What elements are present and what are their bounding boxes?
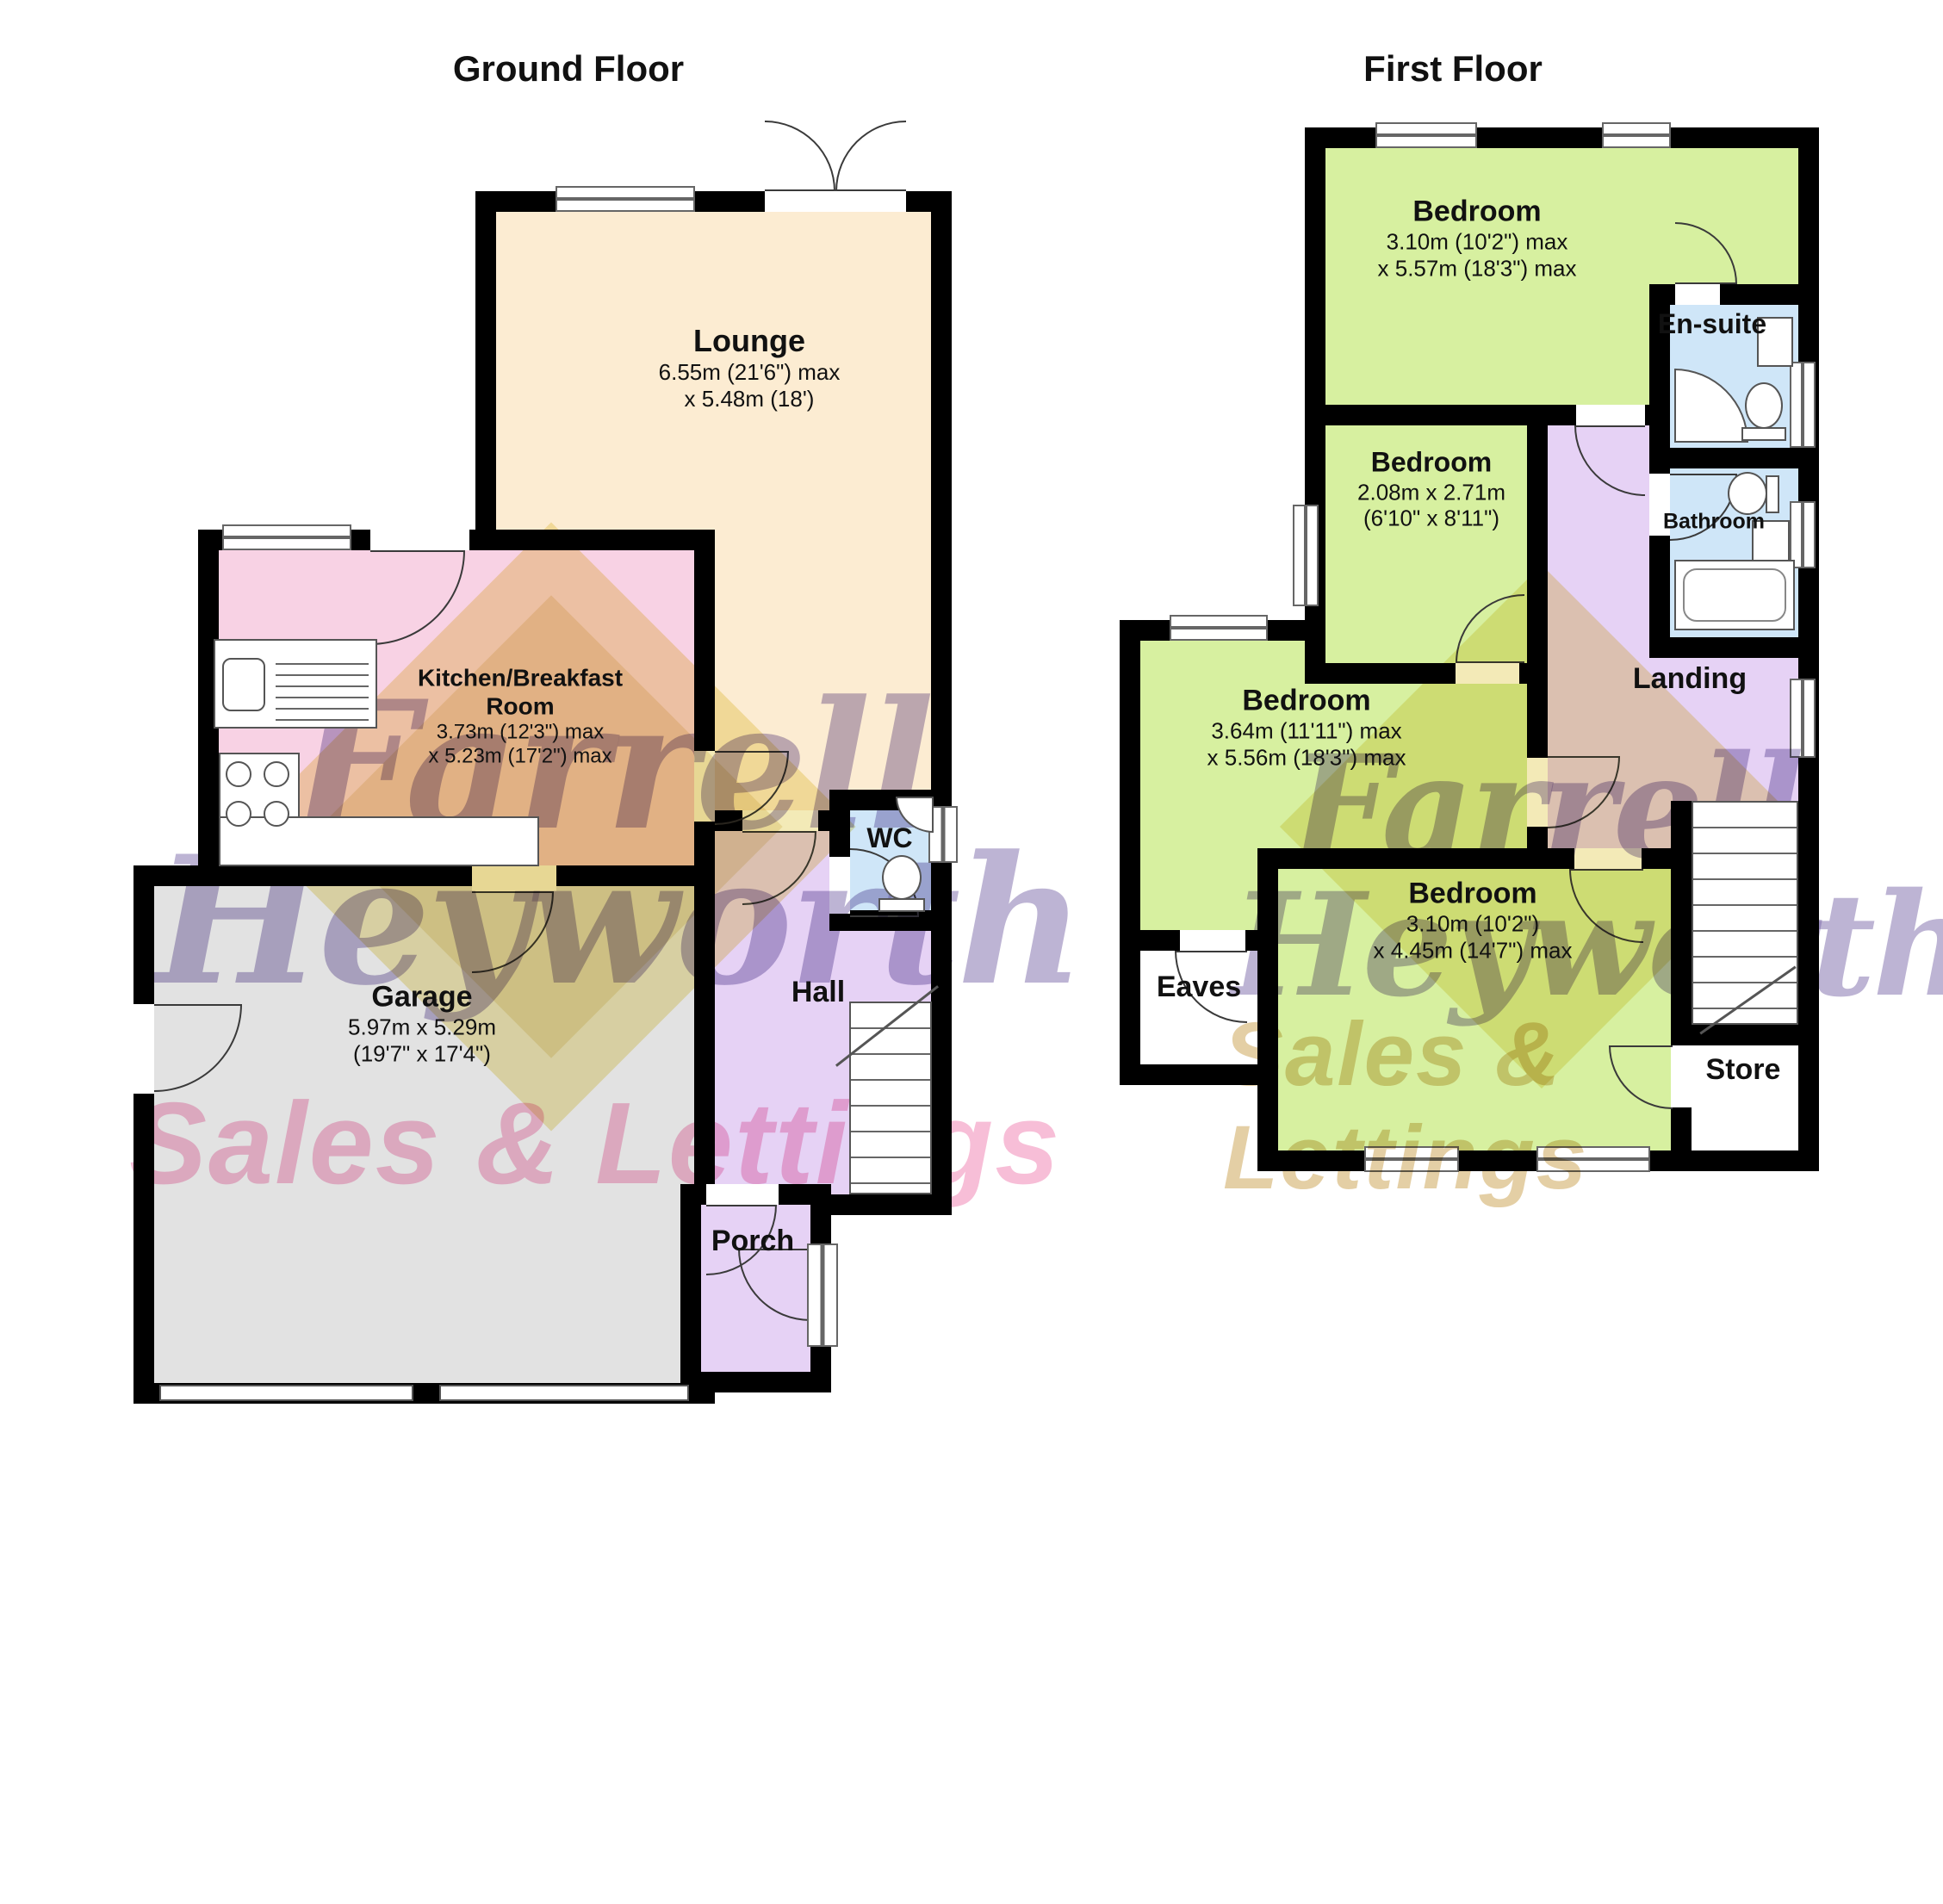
right-outer-wall [1798, 869, 1819, 1025]
kitchen-door-opening [370, 530, 469, 550]
porch-label: Porch [711, 1224, 794, 1258]
wc-door-opening [829, 857, 850, 914]
french-door-opening [765, 191, 906, 212]
bedroom1-door-opening [1576, 405, 1645, 425]
garage-door-fixture [439, 1385, 689, 1401]
bedroom4-window-icon [1364, 1146, 1459, 1172]
kitchen-garage-door-opening [472, 865, 556, 891]
kitchen-sink-fixture [222, 658, 265, 711]
store-name: Store [1706, 1052, 1781, 1087]
lounge-dim: 6.55m (21'6") max [659, 360, 841, 387]
hob-burner-icon [264, 761, 289, 787]
bathroom-toilet-tank-icon [1766, 475, 1779, 513]
hob-burner-icon [226, 801, 251, 827]
kitchen-units-fixture [219, 816, 539, 866]
floorplan-canvas: Ground Floor First Floor [0, 0, 1943, 1904]
bedroom3-dim: 3.64m (11'11") max [1207, 717, 1406, 744]
garage-name: Garage [348, 979, 496, 1014]
bedroom3-window-icon [1170, 615, 1268, 641]
bedroom1-dim: 3.10m (10'2") max [1378, 228, 1577, 255]
kitchen-dim: 3.73m (12'3") max [387, 721, 654, 745]
ensuite-bathroom-wall [1649, 448, 1819, 468]
hob-burner-icon [226, 761, 251, 787]
wc-toilet-fixture [882, 855, 922, 900]
landing-name: Landing [1633, 661, 1747, 696]
bath-inner-icon [1683, 568, 1786, 622]
wc-name: WC [866, 822, 912, 855]
ensuite-door-opening [1675, 284, 1720, 305]
first-floor-title: First Floor [1363, 48, 1543, 90]
garage-side-door-opening [133, 1004, 154, 1094]
ensuite-toilet-tank-icon [1741, 427, 1786, 441]
room-garage [133, 865, 715, 1404]
ensuite-window-icon [1790, 362, 1816, 448]
bedroom3-label: Bedroom 3.64m (11'11") max x 5.56m (18'3… [1207, 683, 1406, 770]
bathroom-window-icon [1790, 501, 1816, 568]
ground-floor-title: Ground Floor [453, 48, 684, 90]
kitchen-dim: x 5.23m (17'2") max [387, 745, 654, 769]
ensuite-name: En-suite [1658, 308, 1766, 341]
garage-dim: 5.97m x 5.29m [348, 1014, 496, 1040]
bedroom4-window-icon [1536, 1146, 1650, 1172]
lounge-dim: x 5.48m (18') [659, 386, 841, 412]
stairs-left-wall [1671, 801, 1692, 1025]
ensuite-label: En-suite [1658, 308, 1766, 341]
bedroom2-name: Bedroom [1357, 446, 1505, 479]
kitchen-name: Kitchen/Breakfast Room [387, 664, 654, 721]
store-door-opening [1671, 1045, 1692, 1107]
bedroom2-window-icon [1293, 505, 1319, 606]
porch-name: Porch [711, 1224, 794, 1258]
eaves-label: Eaves [1157, 970, 1241, 1004]
hall-porch-door-opening [706, 1184, 779, 1205]
bedroom2-door-opening [1456, 663, 1519, 684]
bedroom1-label: Bedroom 3.10m (10'2") max x 5.57m (18'3"… [1378, 194, 1577, 281]
bedroom4-dim: x 4.45m (14'7") max [1374, 937, 1573, 964]
bedroom3-name: Bedroom [1207, 683, 1406, 717]
landing-label: Landing [1633, 661, 1747, 696]
bedroom4-dim: 3.10m (10'2") [1374, 910, 1573, 937]
bedroom1-name: Bedroom [1378, 194, 1577, 228]
eaves-name: Eaves [1157, 970, 1241, 1004]
bedroom4-label: Bedroom 3.10m (10'2") x 4.45m (14'7") ma… [1374, 876, 1573, 963]
bedroom3-door-opening [1527, 758, 1548, 827]
garage-door-fixture [159, 1385, 413, 1401]
front-door-frame-icon [807, 1243, 838, 1347]
hob-burner-icon [264, 801, 289, 827]
hall-name: Hall [791, 975, 845, 1009]
garage-label: Garage 5.97m x 5.29m (19'7" x 17'4") [348, 979, 496, 1066]
ensuite-toilet-fixture [1745, 382, 1783, 429]
bedroom2-label: Bedroom 2.08m x 2.71m (6'10" x 8'11") [1357, 446, 1505, 531]
bedroom4-name: Bedroom [1374, 876, 1573, 910]
lounge-window-icon [556, 186, 695, 212]
store-label: Store [1706, 1052, 1781, 1087]
landing-window-icon [1790, 679, 1816, 758]
bedroom1-window-icon [1602, 122, 1671, 148]
stairs-first [1692, 801, 1798, 1025]
bedroom1-window-icon [1375, 122, 1477, 148]
bedroom3-dim: x 5.56m (18'3") max [1207, 744, 1406, 771]
bedroom2-dim: (6'10" x 8'11") [1357, 505, 1505, 532]
garage-dim: (19'7" x 17'4") [348, 1040, 496, 1067]
french-door-left-arc-icon [765, 121, 835, 191]
kitchen-hall-door-opening [694, 751, 715, 822]
bathroom-name: Bathroom [1663, 509, 1765, 535]
lounge-name: Lounge [659, 323, 841, 359]
kitchen-window-icon [222, 524, 351, 550]
lounge-label: Lounge 6.55m (21'6") max x 5.48m (18') [659, 323, 841, 412]
wc-label: WC [866, 822, 912, 855]
bedroom2-dim: 2.08m x 2.71m [1357, 479, 1505, 505]
stairs-ground [849, 1002, 932, 1194]
wc-toilet-tank-icon [878, 898, 925, 912]
kitchen-drainer-icon [276, 663, 369, 722]
bathroom-label: Bathroom [1663, 509, 1765, 535]
bedroom1-dim: x 5.57m (18'3") max [1378, 255, 1577, 282]
french-door-right-arc-icon [835, 121, 906, 191]
hall-label: Hall [791, 975, 845, 1009]
eaves-door-opening [1180, 930, 1245, 951]
bedroom4-door-opening [1574, 848, 1642, 869]
room-store [1671, 1025, 1819, 1171]
kitchen-label: Kitchen/Breakfast Room 3.73m (12'3") max… [387, 664, 654, 770]
